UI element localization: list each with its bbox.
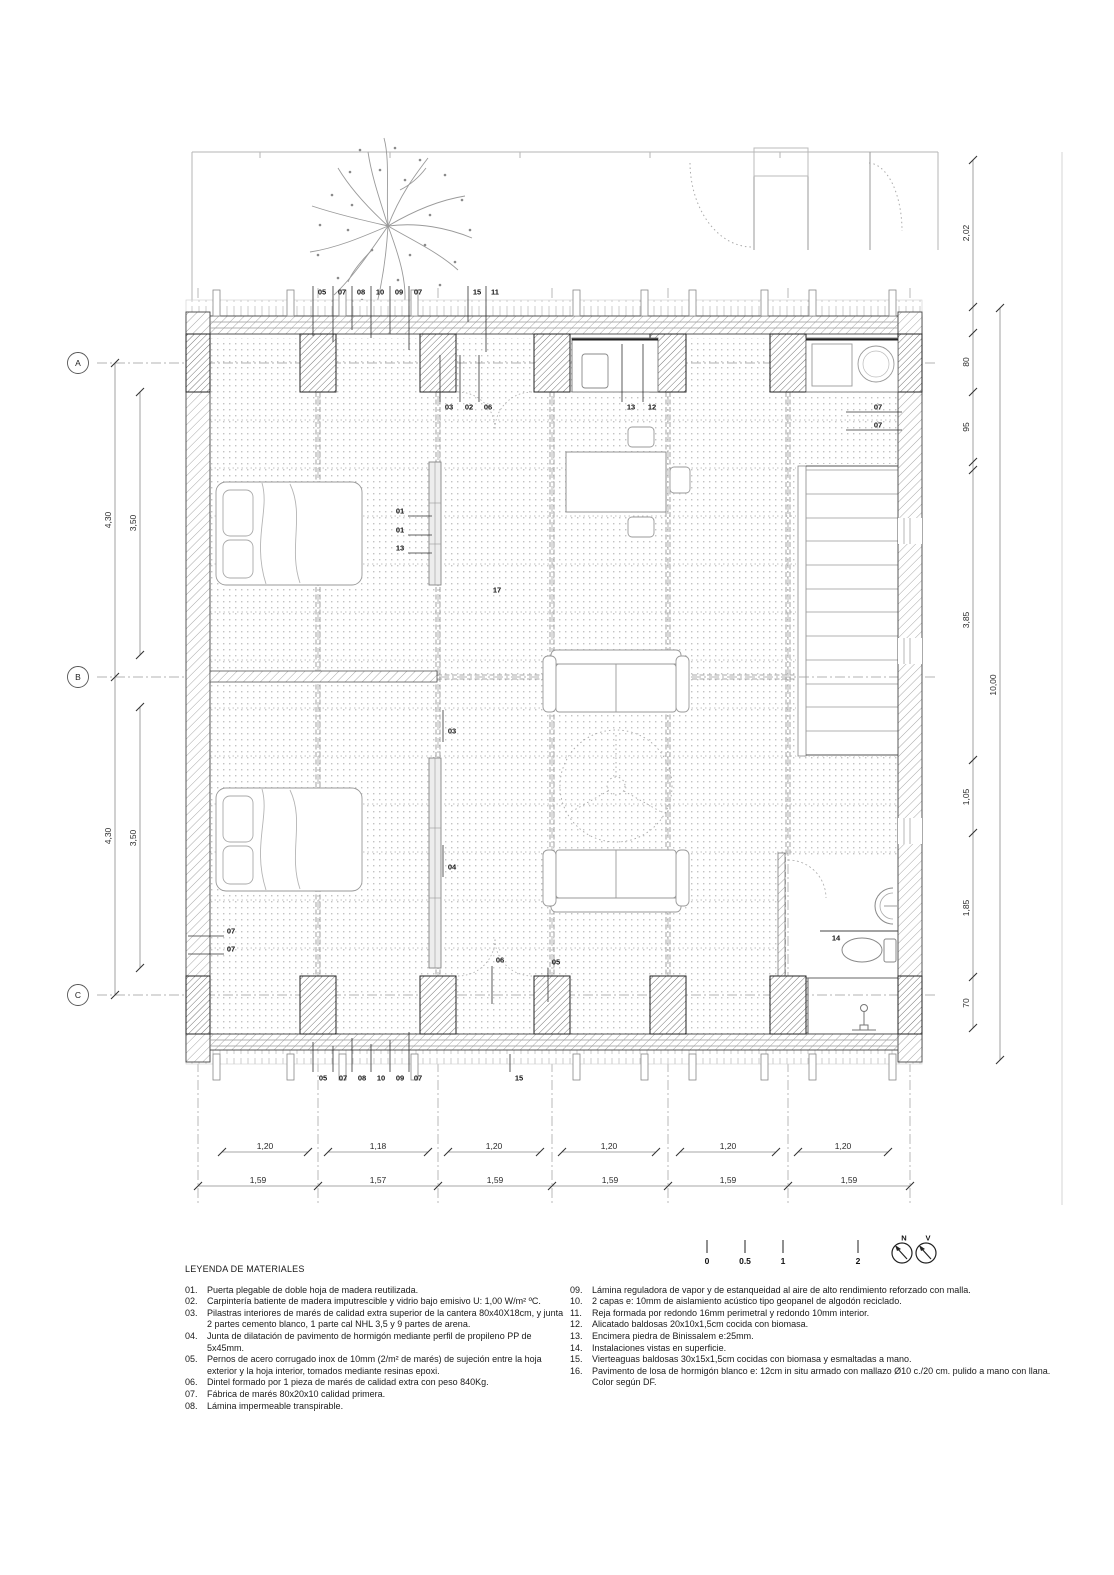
callout-label: 07 [227, 945, 235, 954]
legend-item-number: 10. [570, 1296, 592, 1308]
legend-item: 16.Pavimento de losa de hormigón blanco … [570, 1366, 1070, 1389]
legend-item-text: Lámina reguladora de vapor y de estanque… [592, 1285, 1070, 1297]
callout-label: 09 [396, 1074, 404, 1083]
dimension-label: 70 [961, 998, 971, 1007]
legend-item-number: 14. [570, 1343, 592, 1355]
callout-label: 04 [448, 863, 456, 872]
dimension-label: 80 [961, 357, 971, 366]
legend-item-number: 01. [185, 1285, 207, 1297]
legend-column-left: 01.Puerta plegable de doble hoja de made… [185, 1285, 565, 1413]
legend-item-text: Fábrica de marés 80x20x10 calidad primer… [207, 1389, 565, 1401]
legend-item: 10.2 capas e: 10mm de aislamiento acústi… [570, 1296, 1070, 1308]
dimension-label: 1,85 [961, 900, 971, 917]
legend-item-number: 07. [185, 1389, 207, 1401]
callout-label: 09 [395, 288, 403, 297]
callout-label: 12 [648, 403, 656, 412]
legend-item-number: 12. [570, 1319, 592, 1331]
dimension-label: 3,50 [128, 515, 138, 532]
bed [216, 482, 362, 585]
dimension-label: 1,20 [486, 1141, 503, 1151]
callout-label: 10 [376, 288, 384, 297]
sofa [543, 650, 689, 712]
legend-item: 14.Instalaciones vistas en superficie. [570, 1343, 1070, 1355]
legend-item-text: Junta de dilatación de pavimento de horm… [207, 1331, 565, 1354]
legend-item-number: 11. [570, 1308, 592, 1320]
legend-item: 08.Lámina impermeable transpirable. [185, 1401, 565, 1413]
callout-label: 15 [473, 288, 481, 297]
legend-item-number: 13. [570, 1331, 592, 1343]
dimension-label: 1,59 [602, 1175, 619, 1185]
callout-label: 05 [319, 1074, 327, 1083]
dimension-label: 1,57 [370, 1175, 387, 1185]
bed [216, 788, 362, 891]
dimension-label: 4,30 [103, 828, 113, 845]
callout-label: 05 [552, 958, 560, 967]
grid-label-b: B [75, 672, 81, 682]
legend-item: 13.Encimera piedra de Binissalem e:25mm. [570, 1331, 1070, 1343]
dimension-label: 1,59 [841, 1175, 858, 1185]
legend-item-text: Encimera piedra de Binissalem e:25mm. [592, 1331, 1070, 1343]
callout-label: 10 [377, 1074, 385, 1083]
legend-item-text: Pernos de acero corrugado inox de 10mm (… [207, 1354, 565, 1377]
grid-label-c: C [75, 990, 81, 1000]
legend-item-number: 09. [570, 1285, 592, 1297]
legend-item-text: Puerta plegable de doble hoja de madera … [207, 1285, 565, 1297]
callout-label: 07 [414, 288, 422, 297]
callout-label: 06 [484, 403, 492, 412]
legend-item: 04.Junta de dilatación de pavimento de h… [185, 1331, 565, 1354]
staircase [796, 464, 898, 756]
legend-item: 12.Alicatado baldosas 20x10x1,5cm cocida… [570, 1319, 1070, 1331]
legend-item-number: 08. [185, 1401, 207, 1413]
dimension-label: 3,85 [961, 612, 971, 629]
legend-item: 07.Fábrica de marés 80x20x10 calidad pri… [185, 1389, 565, 1401]
legend-item-text: Lámina impermeable transpirable. [207, 1401, 565, 1413]
dimension-label-total: 10,00 [988, 674, 998, 695]
legend-item-number: 06. [185, 1377, 207, 1389]
scale-bar [707, 1240, 858, 1253]
callout-label: 07 [339, 1074, 347, 1083]
dimension-label: 1,59 [250, 1175, 267, 1185]
callout-label: 08 [357, 288, 365, 297]
legend-item: 03.Pilastras interiores de marés de cali… [185, 1308, 565, 1331]
callout-label: 01 [396, 507, 404, 516]
legend-item-number: 03. [185, 1308, 207, 1331]
dimension-label: 1,59 [720, 1175, 737, 1185]
callout-label: 03 [445, 403, 453, 412]
callout-label: 01 [396, 526, 404, 535]
legend-column-right: 09.Lámina reguladora de vapor y de estan… [570, 1285, 1070, 1389]
dimension-label: 1,20 [720, 1141, 737, 1151]
dimension-label: 4,30 [103, 512, 113, 529]
callout-label: 07 [414, 1074, 422, 1083]
dimension-label: 1,05 [961, 789, 971, 806]
legend-item-text: Pavimento de losa de hormigón blanco e: … [592, 1366, 1070, 1389]
callout-label: 07 [874, 403, 882, 412]
legend-item: 02.Carpintería batiente de madera imputr… [185, 1296, 565, 1308]
dimension-label: 1,20 [601, 1141, 618, 1151]
sofa [543, 850, 689, 912]
callout-label: 03 [448, 727, 456, 736]
legend-item-number: 02. [185, 1296, 207, 1308]
bedroom-divider-wall [210, 671, 437, 682]
north-label: N [901, 1234, 906, 1243]
legend-item-text: Reja formada por redondo 16mm perimetral… [592, 1308, 1070, 1320]
legend-item-text: Dintel formado por 1 pieza de marés de c… [207, 1377, 565, 1389]
dimension-label: 2,02 [961, 225, 971, 242]
callout-label: 07 [338, 288, 346, 297]
callout-label: 05 [318, 288, 326, 297]
callout-label: 17 [493, 586, 501, 595]
callout-label: 13 [396, 544, 404, 553]
legend-item: 15.Vierteaguas baldosas 30x15x1,5cm coci… [570, 1354, 1070, 1366]
legend-item-number: 16. [570, 1366, 592, 1389]
tree [310, 138, 472, 322]
legend-item-number: 15. [570, 1354, 592, 1366]
callout-label: 06 [496, 956, 504, 965]
legend-item: 06.Dintel formado por 1 pieza de marés d… [185, 1377, 565, 1389]
dimension-label: 95 [961, 422, 971, 431]
gate-posts [754, 148, 870, 250]
north-arrow-icon [892, 1243, 912, 1263]
grid-label-a: A [75, 358, 81, 368]
legend-item-text: Instalaciones vistas en superficie. [592, 1343, 1070, 1355]
legend-item: 09.Lámina reguladora de vapor y de estan… [570, 1285, 1070, 1297]
dimension-label: 1,59 [487, 1175, 504, 1185]
callout-label: 02 [465, 403, 473, 412]
callout-label: 07 [227, 927, 235, 936]
dimension-label: 1,20 [835, 1141, 852, 1151]
legend-item-number: 05. [185, 1354, 207, 1377]
legend-item: 11.Reja formada por redondo 16mm perimet… [570, 1308, 1070, 1320]
legend-item: 05.Pernos de acero corrugado inox de 10m… [185, 1354, 565, 1377]
callout-label: 13 [627, 403, 635, 412]
vertical-label: V [925, 1234, 930, 1243]
legend-item-number: 04. [185, 1331, 207, 1354]
dimension-label: 3,50 [128, 830, 138, 847]
architectural-sheet: A B C 05 07 08 10 09 07 15 11 05 07 08 1… [0, 0, 1114, 1575]
legend-item-text: Vierteaguas baldosas 30x15x1,5cm cocidas… [592, 1354, 1070, 1366]
dimension-label: 1,18 [370, 1141, 387, 1151]
legend-item-text: Alicatado baldosas 20x10x1,5cm cocida co… [592, 1319, 1070, 1331]
dimension-label: 1,20 [257, 1141, 274, 1151]
legend-item-text: 2 capas e: 10mm de aislamiento acústico … [592, 1296, 1070, 1308]
callout-label: 08 [358, 1074, 366, 1083]
callout-label: 15 [515, 1074, 523, 1083]
callout-label: 11 [491, 288, 499, 297]
callout-label: 07 [874, 421, 882, 430]
materials-legend: LEYENDA DE MATERIALES 01.Puerta plegable… [185, 1264, 1075, 1285]
legend-item: 01.Puerta plegable de doble hoja de made… [185, 1285, 565, 1297]
legend-item-text: Carpintería batiente de madera imputresc… [207, 1296, 565, 1308]
callout-label: 14 [832, 934, 840, 943]
legend-item-text: Pilastras interiores de marés de calidad… [207, 1308, 565, 1331]
vertical-arrow-icon [916, 1243, 936, 1263]
legend-title: LEYENDA DE MATERIALES [185, 1264, 1075, 1276]
